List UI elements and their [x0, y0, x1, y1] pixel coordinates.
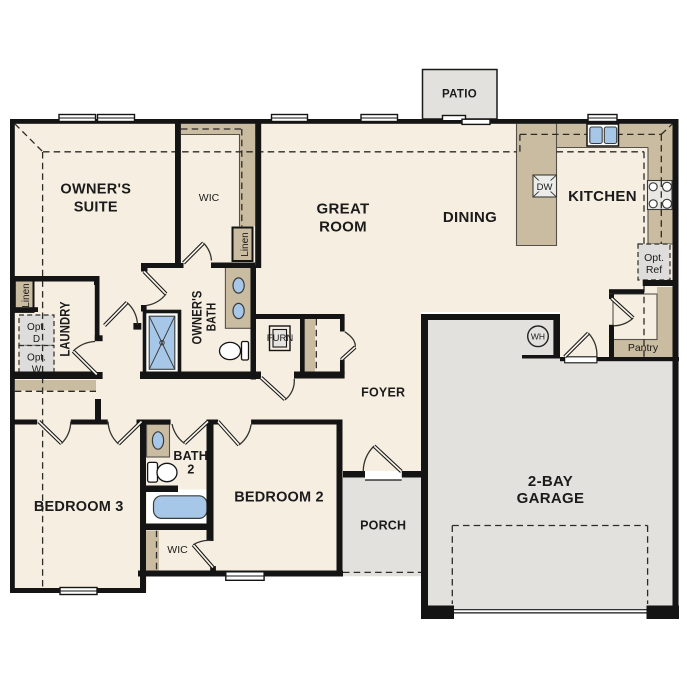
svg-text:PORCH: PORCH — [360, 519, 406, 533]
svg-text:KITCHEN: KITCHEN — [568, 188, 637, 205]
svg-text:DW: DW — [537, 182, 553, 193]
svg-text:BEDROOM 2: BEDROOM 2 — [234, 490, 324, 506]
svg-text:WH: WH — [531, 332, 545, 342]
svg-text:Ref: Ref — [646, 264, 662, 276]
svg-text:Linen: Linen — [21, 283, 32, 307]
svg-text:2-BAY: 2-BAY — [528, 473, 573, 490]
svg-text:BEDROOM 3: BEDROOM 3 — [34, 499, 124, 515]
svg-text:Pantry: Pantry — [628, 342, 659, 354]
svg-text:Opt.: Opt. — [644, 252, 664, 264]
svg-text:ROOM: ROOM — [319, 219, 367, 236]
svg-text:DINING: DINING — [443, 209, 497, 226]
svg-text:Opt.: Opt. — [27, 322, 46, 333]
svg-text:SUITE: SUITE — [74, 200, 118, 216]
svg-text:W: W — [32, 365, 42, 376]
svg-text:GARAGE: GARAGE — [517, 490, 585, 507]
svg-text:Opt.: Opt. — [27, 353, 46, 364]
svg-text:OWNER'S: OWNER'S — [60, 182, 131, 198]
svg-text:WIC: WIC — [199, 192, 220, 204]
svg-text:BATH: BATH — [173, 449, 208, 463]
svg-text:BATH: BATH — [204, 303, 218, 332]
svg-text:LAUNDRY: LAUNDRY — [57, 301, 72, 357]
svg-text:2: 2 — [187, 463, 194, 477]
svg-text:OWNER'S: OWNER'S — [189, 290, 204, 344]
svg-text:FOYER: FOYER — [361, 386, 405, 400]
svg-text:PATIO: PATIO — [442, 89, 477, 101]
svg-text:WIC: WIC — [167, 544, 188, 556]
svg-text:GREAT: GREAT — [317, 201, 370, 218]
svg-text:FURN: FURN — [267, 333, 294, 344]
svg-text:D: D — [33, 334, 40, 345]
svg-text:Linen: Linen — [240, 232, 251, 256]
